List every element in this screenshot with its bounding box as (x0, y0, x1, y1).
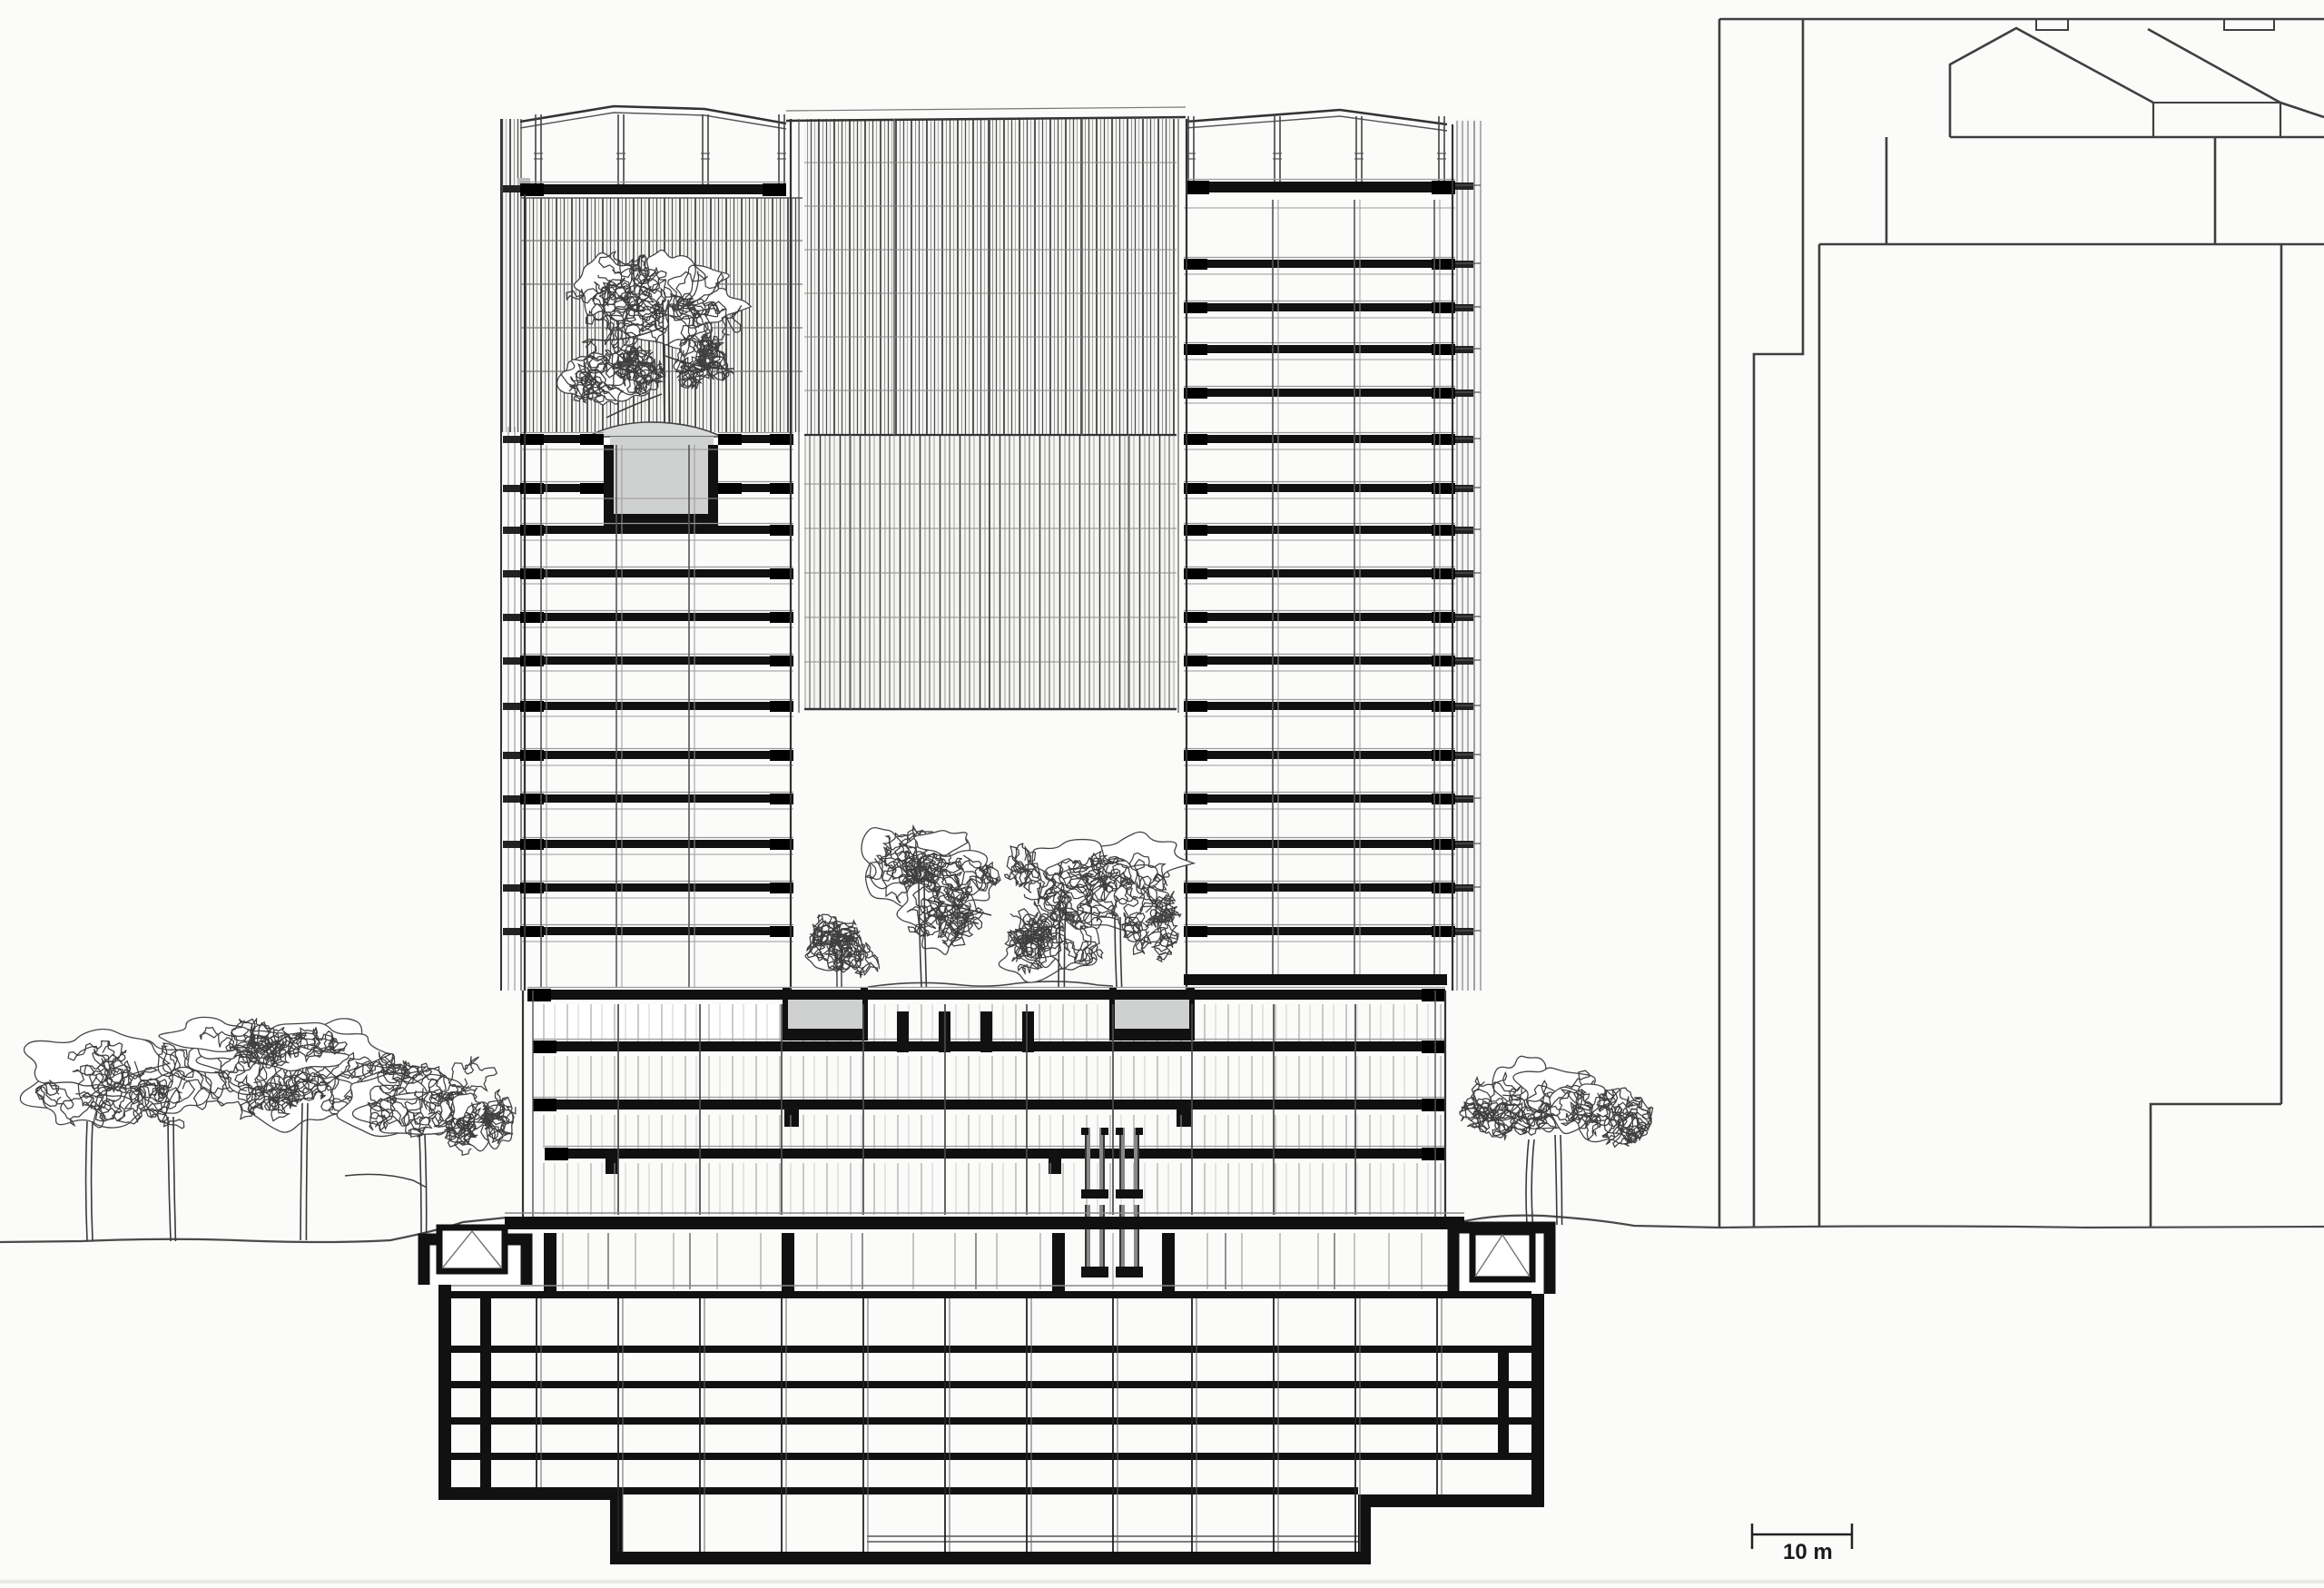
svg-text:10 m: 10 m (1783, 1540, 1833, 1564)
